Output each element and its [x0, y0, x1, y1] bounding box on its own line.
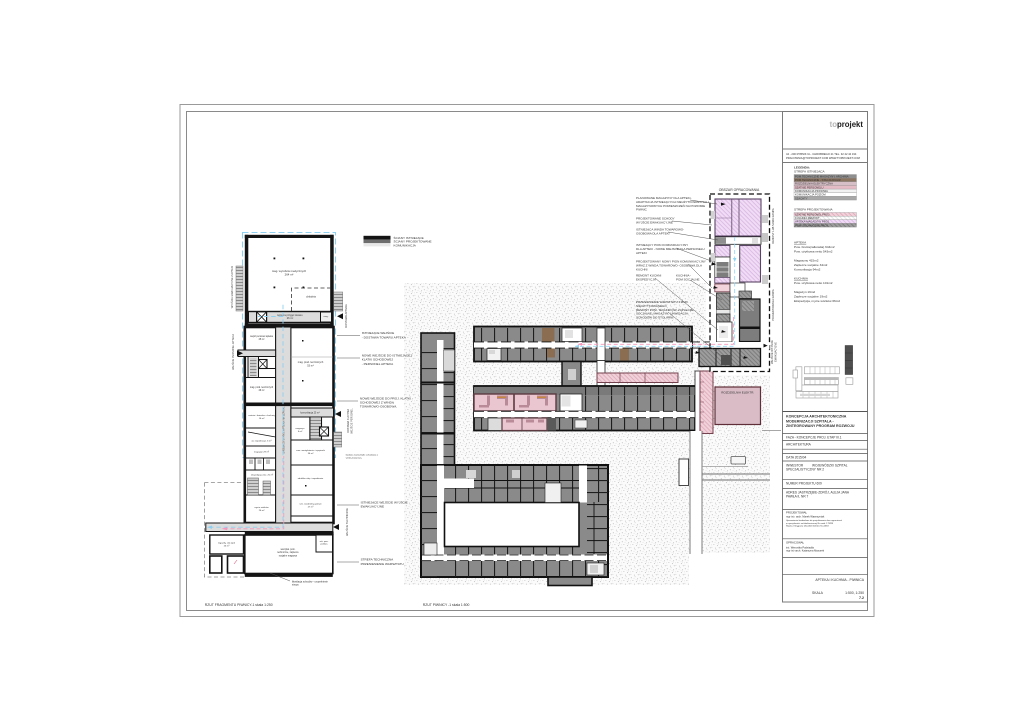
svg-text:Ekspedycja, mycie wózków 66m2: Ekspedycja, mycie wózków 66m2 [794, 299, 840, 303]
svg-text:mycie wózków: mycie wózków [254, 507, 269, 509]
svg-text:26 m²: 26 m² [259, 389, 265, 392]
svg-text:w specjalności architektoniczn: w specjalności architektonicznej Nr ewid… [786, 522, 834, 525]
svg-text:26 m²: 26 m² [259, 509, 265, 512]
svg-text:mag.: mag. [324, 316, 329, 318]
svg-text:SZACHTY: SZACHTY [795, 196, 808, 200]
svg-text:RZUT FRAGMENTU PIWNICY-1 skala: RZUT FRAGMENTU PIWNICY-1 skala 1:250 [205, 603, 273, 607]
svg-text:POM.TECHNICZNE MAGAZYNY, ARCH: POM.TECHNICZNE MAGAZYNY, ARCHIWA [795, 174, 849, 178]
svg-text:komunikacja 25 m²: komunikacja 25 m² [300, 412, 320, 415]
svg-text:mgr inż. arch. Marek Wawrzynia: mgr inż. arch. Marek Wawrzyniak [786, 515, 825, 519]
svg-text:DATA 2015/04: DATA 2015/04 [786, 456, 806, 460]
svg-text:PIWNIC: PIWNIC [636, 208, 648, 212]
svg-text:TOWAROWO-OSOBOWĄ: TOWAROWO-OSOBOWĄ [360, 405, 397, 409]
svg-text:mag. prod. leczniczych: mag. prod. leczniczych [250, 386, 274, 389]
svg-text:budowa nowej klatki schodowej: budowa nowej klatki schodowej z [346, 454, 378, 457]
svg-text:SKALA: SKALA [812, 591, 824, 595]
svg-text:KOMUNIKACJA PIONOWA: KOMUNIKACJA PIONOWA [795, 189, 828, 193]
svg-text:OSOBOWA DLA APTEKI: OSOBOWA DLA APTEKI [636, 231, 670, 235]
svg-text:KOMUNIKACJA: KOMUNIKACJA [394, 243, 417, 247]
svg-text:36 m²: 36 m² [308, 452, 314, 455]
svg-text:WYJŚCIE EWAKUACYJNE Z APTEKI: WYJŚCIE EWAKUACYJNE Z APTEKI [231, 265, 234, 308]
svg-text:STREFA ISTNIEJĄCA: STREFA ISTNIEJĄCA [794, 170, 826, 174]
svg-text:1:500, 1:250: 1:500, 1:250 [845, 591, 864, 595]
svg-text:APTEKA: APTEKA [794, 241, 807, 245]
svg-text:MODERNIZACJI SZPITALA -: MODERNIZACJI SZPITALA - [786, 419, 835, 423]
svg-text:RZUT PIWNICY -1 skala 1:500: RZUT PIWNICY -1 skala 1:500 [423, 603, 470, 607]
svg-text:obróbka stóp i napełnianie: obróbka stóp i napełnianie [298, 477, 324, 480]
svg-text:EWAKUACYJNE: EWAKUACYJNE [361, 505, 384, 509]
svg-text:Zaplecze socjalne 34m2: Zaplecze socjalne 34m2 [794, 263, 828, 267]
svg-text:EWAKUACYJNE: EWAKUACYJNE [774, 342, 778, 362]
svg-text:WEJŚCIE PERSONEL: WEJŚCIE PERSONEL [351, 408, 354, 434]
svg-text:- DOSTAWA TOWARU APTEKA: - DOSTAWA TOWARU APTEKA [362, 335, 407, 339]
svg-text:KUCHNIA REMONT: KUCHNIA REMONT [795, 216, 820, 220]
svg-text:ROZDZIELNIA ELEKTR.: ROZDZIELNIA ELEKTR. [721, 391, 754, 395]
svg-text:44 - 200 RYBNIK UL. CHROBREG: 44 - 200 RYBNIK UL. CHROBREGO 21 TEL. 32… [786, 152, 857, 156]
svg-text:WYJŚCIE EWAKUACYJNE: WYJŚCIE EWAKUACYJNE [636, 219, 673, 224]
svg-text:Pow. brutto(całkowita) 644m2: Pow. brutto(całkowita) 644m2 [794, 245, 835, 249]
svg-text:PRZENIESIENIE WARSZTATU: PRZENIESIENIE WARSZTATU [361, 562, 404, 566]
svg-text:Śląska Okręgowa Izba Architekt: Śląska Okręgowa Izba Architektów SL-0363 [786, 525, 829, 528]
svg-text:NUMER PROJEKTU 609: NUMER PROJEKTU 609 [786, 482, 822, 486]
svg-text:REMONT LUB NOWA RAMPA: REMONT LUB NOWA RAMPA [771, 208, 775, 244]
svg-text:POM.TECHNICZNE - STACJA DIALIZ: POM.TECHNICZNE - STACJA DIALIZ [795, 178, 841, 182]
svg-text:PROJEKTOWAŁ: PROJEKTOWAŁ [786, 511, 807, 515]
svg-text:PROJEKTOWANA RAMPA: PROJEKTOWANA RAMPA [771, 289, 775, 320]
svg-text:OPRACOWAŁ: OPRACOWAŁ [786, 540, 805, 544]
svg-text:APTEKA I KUCHNIA - PIWNICA: APTEKA I KUCHNIA - PIWNICA [815, 578, 864, 582]
svg-text:techniczne, zaplecze: techniczne, zaplecze [277, 551, 299, 554]
svg-text:- PERSONEL APTEKA: - PERSONEL APTEKA [362, 362, 394, 366]
svg-text:6 m²: 6 m² [298, 430, 303, 433]
svg-text:APTEKI: APTEKI [636, 251, 647, 255]
svg-text:DOSTAWA APTEKA: DOSTAWA APTEKA [344, 304, 348, 328]
svg-text:wentylat. pom.: wentylat. pom. [281, 548, 296, 551]
svg-text:podłoża: podłoża [320, 544, 328, 546]
svg-text:SZATNIE PERSONELU: SZATNIE PERSONELU [795, 185, 824, 189]
svg-text:Magazyn 19m2: Magazyn 19m2 [794, 290, 815, 294]
svg-text:magazyn: magazyn [296, 428, 306, 430]
svg-text:socjalne magazyn: socjalne magazyn [279, 555, 298, 557]
svg-text:sek. rozdzielny gotowe: sek. rozdzielny gotowe [299, 503, 322, 506]
svg-text:23 m²: 23 m² [224, 545, 230, 548]
svg-text:16 m²: 16 m² [259, 417, 265, 420]
svg-text:OBSZAR OPRACOWANIA: OBSZAR OPRACOWANIA [719, 188, 760, 192]
svg-text:PRACOWNIA@TOPROJEKT.COM WWW.T: PRACOWNIA@TOPROJEKT.COM WWW.TOPROJEKT.CO… [786, 156, 861, 160]
svg-text:SCHODÓW DO STOLARNI: SCHODÓW DO STOLARNI [636, 315, 673, 320]
svg-text:WEJŚCIE TECHNICZNE: WEJŚCIE TECHNICZNE [346, 508, 349, 536]
svg-text:KUCHNIA: KUCHNIA [794, 277, 809, 281]
svg-text:windą towarową: windą towarową [346, 457, 362, 460]
svg-text:SPECJALISTYCZNY NR 2: SPECJALISTYCZNY NR 2 [786, 468, 824, 472]
svg-text:ZINTEGROWANY PROGRAM ROZWOJU: ZINTEGROWANY PROGRAM ROZWOJU [786, 424, 855, 428]
svg-text:Uprawnienia budowlane do proje: Uprawnienia budowlane do projektowania b… [786, 519, 843, 522]
svg-text:POM SOCJALNE: POM SOCJALNE [676, 277, 700, 281]
svg-text:sam. wentylatornia i sprężarki: sam. wentylatornia i sprężarki [296, 449, 325, 452]
svg-text:stropu: stropu [292, 584, 299, 587]
svg-text:26 m²: 26 m² [287, 317, 294, 320]
svg-text:POM. TECHNICZNE PROJ.: POM. TECHNICZNE PROJ. [795, 223, 829, 227]
svg-text:wejść personel apteka: wejść personel apteka [250, 335, 273, 338]
svg-text:53 m²: 53 m² [307, 365, 314, 368]
svg-text:SZATNIE PERSONEL PROJ.: SZATNIE PERSONEL PROJ. [795, 212, 830, 216]
svg-text:ROZDZIELNIA ELEKTRYCZNA: ROZDZIELNIA ELEKTRYCZNA [795, 182, 833, 186]
svg-text:ekspedycja wóz. 20 m²: ekspedycja wóz. 20 m² [251, 474, 274, 477]
svg-text:inż. Weronika Podsiadła: inż. Weronika Podsiadła [786, 545, 814, 549]
svg-text:KOMUNIKACJA POZIOM: KOMUNIKACJA POZIOM [795, 193, 826, 197]
svg-text:Komunikacja 94m2: Komunikacja 94m2 [794, 268, 821, 272]
svg-text:chłodnia: chłodnia [306, 295, 316, 299]
svg-text:264 m²: 264 m² [285, 273, 294, 277]
svg-text:27 m²: 27 m² [308, 506, 314, 509]
svg-text:PAWŁA II, NR 7: PAWŁA II, NR 7 [786, 494, 809, 498]
svg-text:wc niepełnospr. 6 m²: wc niepełnospr. 6 m² [251, 440, 271, 443]
svg-text:magazyn 29 m²: magazyn 29 m² [254, 451, 269, 454]
svg-text:WEJŚCIE PERSONEL APTEKA: WEJŚCIE PERSONEL APTEKA [232, 334, 235, 370]
svg-text:szatnie i łazienka z kuchnią: szatnie i łazienka z kuchnią [248, 414, 275, 417]
svg-text:wyjazdy, stój opał: wyjazdy, stój opał [218, 542, 235, 545]
svg-text:ARCHITEKTURA: ARCHITEKTURA [786, 443, 812, 447]
svg-text:KUCHNI: KUCHNI [636, 267, 648, 271]
svg-text:Magazyny 415m2: Magazyny 415m2 [794, 259, 819, 263]
svg-text:KONCEPCJA ARCHITEKTONICZNA: KONCEPCJA ARCHITEKTONICZNA [786, 415, 847, 419]
svg-text:STREFA PROJEKTOWANA: STREFA PROJEKTOWANA [794, 208, 833, 212]
svg-text:FAZA - KONCEPCJE PROJ. ETAP II: FAZA - KONCEPCJE PROJ. ETAP III.1 [786, 436, 842, 440]
svg-text:mgr inż arch. Katarzyna Mazure: mgr inż arch. Katarzyna Mazurek [786, 549, 825, 553]
svg-text:Zaplecze socjalne 19m2: Zaplecze socjalne 19m2 [794, 295, 828, 299]
svg-text:APTEKA MAGAZYNY PROJ.: APTEKA MAGAZYNY PROJ. [795, 220, 830, 224]
svg-text:Pow. użytkowa netto 543m2: Pow. użytkowa netto 543m2 [794, 250, 833, 254]
svg-text:toprojekt: toprojekt [830, 120, 864, 129]
svg-text:25 m²: 25 m² [259, 338, 265, 341]
svg-text:EKSPEDYCJA: EKSPEDYCJA [636, 277, 656, 281]
svg-text:7.2: 7.2 [859, 596, 864, 600]
svg-text:Pow. użytkowa netto 101m2: Pow. użytkowa netto 101m2 [794, 281, 833, 285]
